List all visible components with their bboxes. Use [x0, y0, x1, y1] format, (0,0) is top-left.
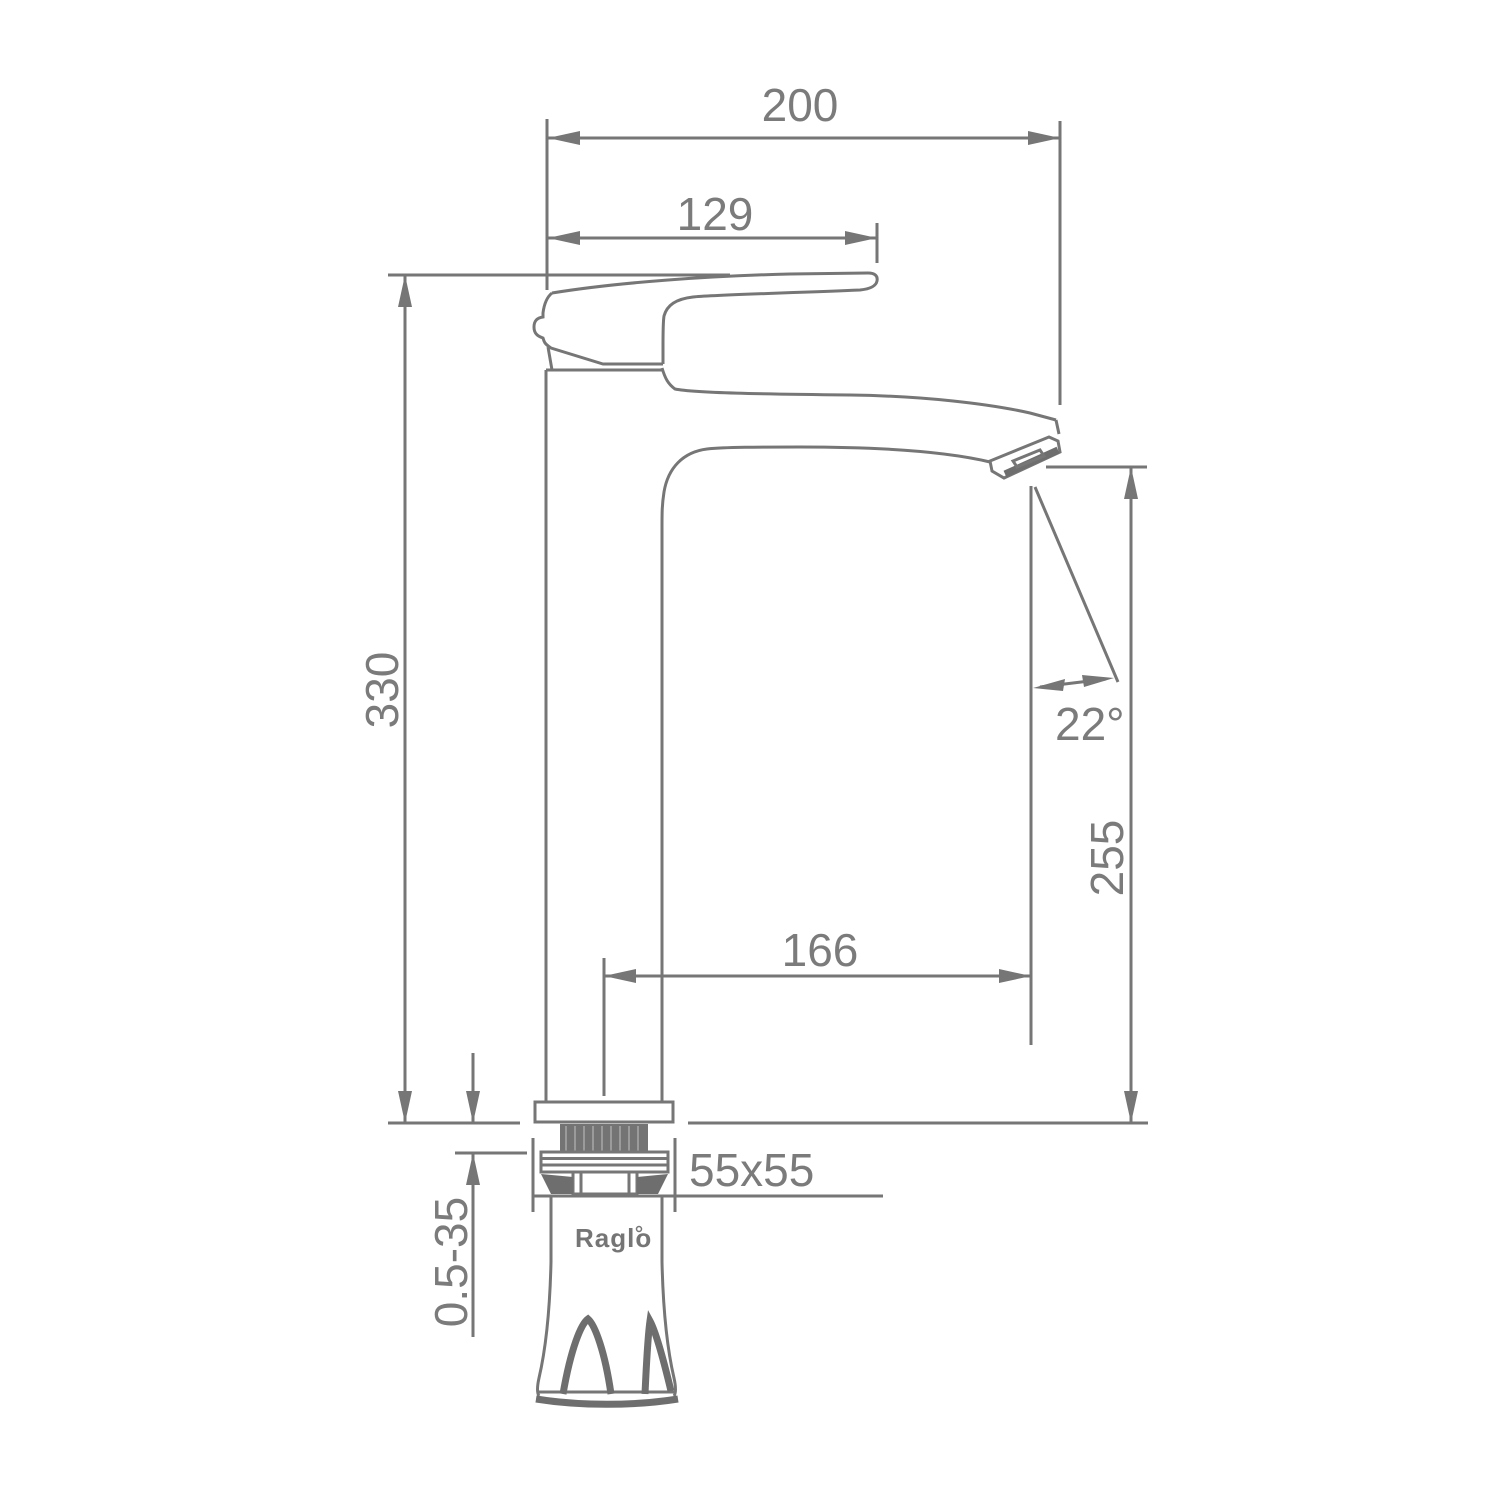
mounting-flange — [535, 1102, 673, 1122]
dimension-mounting-thickness: 0.5-35 — [425, 1053, 527, 1337]
dimension-200: 200 — [547, 79, 1060, 405]
escutcheon-edge — [548, 347, 552, 370]
dim-200-label: 200 — [762, 79, 839, 131]
aerator — [990, 437, 1060, 478]
spout-underside — [662, 447, 990, 1102]
dim-255-label: 255 — [1081, 820, 1133, 897]
dimension-166: 166 — [604, 486, 1031, 1096]
drawing-canvas: 200 129 330 255 166 22° — [0, 0, 1500, 1500]
faucet-technical-drawing: 200 129 330 255 166 22° — [0, 0, 1500, 1500]
angle-slant-line — [1035, 487, 1118, 682]
spout-head-face — [1056, 420, 1059, 434]
dim-22-label: 22° — [1055, 698, 1125, 750]
spout-top-edge — [662, 368, 1056, 420]
dim-330-label: 330 — [356, 652, 408, 729]
dim-0535-label: 0.5-35 — [425, 1197, 477, 1327]
dim-166-label: 166 — [782, 924, 859, 976]
dimension-angle-22: 22° — [1033, 487, 1125, 750]
lock-nut — [541, 1152, 668, 1172]
foot-arch-left — [563, 1319, 611, 1394]
faucet-handle-lever — [552, 273, 877, 364]
faucet-handle-cap — [534, 293, 663, 364]
foot-base — [536, 1399, 678, 1404]
threaded-stub — [560, 1124, 648, 1153]
dimension-129: 129 — [548, 188, 877, 263]
dimension-255: 255 — [1046, 467, 1147, 1123]
dim-129-label: 129 — [677, 188, 754, 240]
dimension-330: 330 — [356, 275, 730, 1123]
brand-logo: Raglo — [575, 1223, 652, 1253]
mounting-clamp — [541, 1172, 668, 1194]
dim-55x55-label: 55x55 — [689, 1144, 814, 1196]
